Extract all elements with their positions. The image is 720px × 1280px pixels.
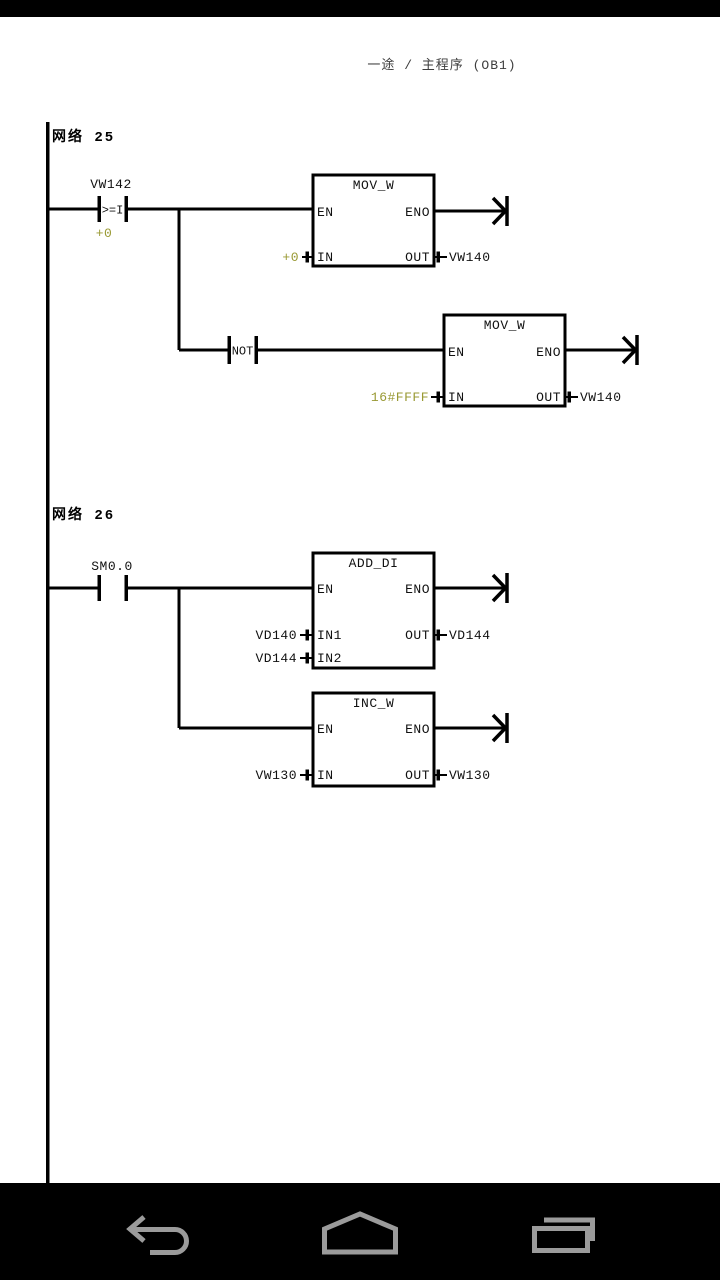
- pin-out-label: OUT: [405, 250, 430, 265]
- pin-eno-label: ENO: [405, 205, 430, 220]
- recents-icon: [528, 1213, 600, 1255]
- output-operand: VD144: [449, 628, 491, 643]
- pin-eno-label: ENO: [536, 345, 561, 360]
- network-25-label: 网络 25: [52, 128, 115, 146]
- pin-out-label: OUT: [536, 390, 561, 405]
- input-operand: VD144: [255, 651, 297, 666]
- output-operand: VW140: [580, 390, 622, 405]
- nav-back-button[interactable]: [120, 1211, 202, 1257]
- input-operand: VW130: [255, 768, 297, 783]
- nav-recents-button[interactable]: [528, 1213, 600, 1255]
- inc-w-block[interactable]: INC_W EN ENO IN OUT VW130 VW130: [255, 693, 490, 786]
- pin-en-label: EN: [317, 205, 334, 220]
- pin-in-label: IN: [317, 250, 334, 265]
- add-di-block[interactable]: ADD_DI EN ENO IN1 IN2 OUT VD140 VD144 VD…: [255, 553, 490, 668]
- pin-en-label: EN: [448, 345, 465, 360]
- pin-en-label: EN: [317, 582, 334, 597]
- compare-value: +0: [96, 226, 113, 241]
- block-title: MOV_W: [484, 318, 526, 333]
- input-operand: VD140: [255, 628, 297, 643]
- block-title: INC_W: [353, 696, 395, 711]
- input-value: 16#FFFF: [371, 390, 429, 405]
- nav-home-button[interactable]: [318, 1209, 402, 1259]
- pin-out-label: OUT: [405, 768, 430, 783]
- contact-symbol: >=I: [102, 204, 124, 218]
- pin-eno-label: ENO: [405, 722, 430, 737]
- contact-sm0-0[interactable]: SM0.0: [91, 559, 133, 601]
- ladder-diagram: 一途 / 主程序 (OB1) 网络 25 VW142 >=I +0 MOV_W …: [0, 0, 720, 1183]
- pin-en-label: EN: [317, 722, 334, 737]
- block-title: MOV_W: [353, 178, 395, 193]
- mov-w-block-1[interactable]: MOV_W EN ENO IN OUT +0 VW140: [282, 175, 490, 266]
- contact-operand: VW142: [90, 177, 132, 192]
- not-contact[interactable]: NOT: [229, 336, 256, 364]
- contact-symbol: NOT: [232, 345, 254, 359]
- output-operand: VW130: [449, 768, 491, 783]
- block-title: ADD_DI: [349, 556, 399, 571]
- input-value: +0: [282, 250, 299, 265]
- pin-in2-label: IN2: [317, 651, 342, 666]
- mov-w-block-2[interactable]: MOV_W EN ENO IN OUT 16#FFFF VW140: [371, 315, 622, 406]
- network-26-label: 网络 26: [52, 506, 115, 524]
- contact-operand: SM0.0: [91, 559, 133, 574]
- back-icon: [120, 1211, 202, 1257]
- pin-eno-label: ENO: [405, 582, 430, 597]
- android-nav-bar: [0, 1183, 720, 1280]
- pin-in-label: IN: [317, 768, 334, 783]
- home-icon: [318, 1209, 402, 1259]
- pin-out-label: OUT: [405, 628, 430, 643]
- pin-in1-label: IN1: [317, 628, 342, 643]
- page-title: 一途 / 主程序 (OB1): [367, 57, 516, 73]
- output-operand: VW140: [449, 250, 491, 265]
- pin-in-label: IN: [448, 390, 465, 405]
